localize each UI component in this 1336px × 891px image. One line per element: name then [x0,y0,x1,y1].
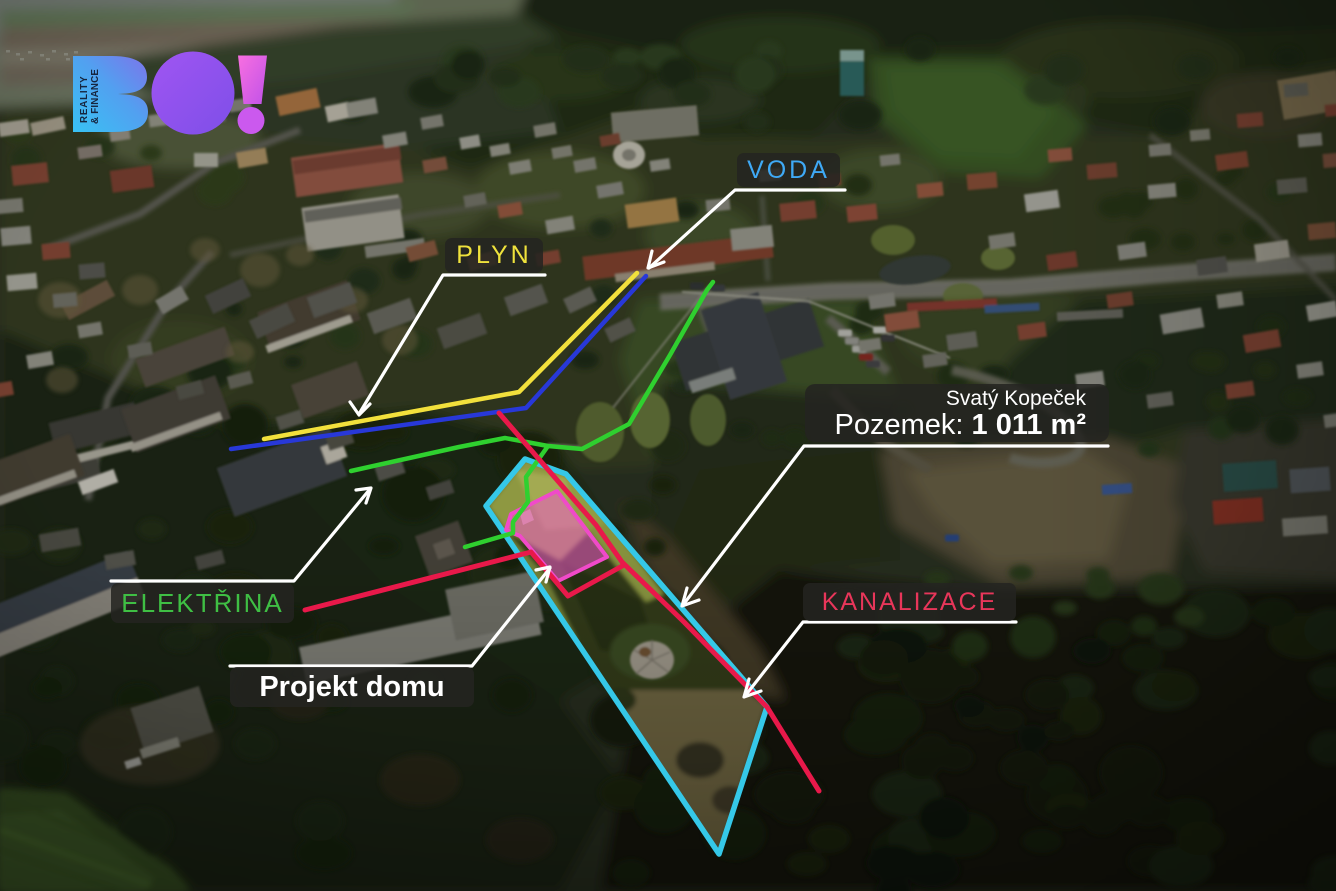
svg-text:REALITY: REALITY [79,75,90,123]
svg-text:& FINANCE: & FINANCE [90,69,101,124]
